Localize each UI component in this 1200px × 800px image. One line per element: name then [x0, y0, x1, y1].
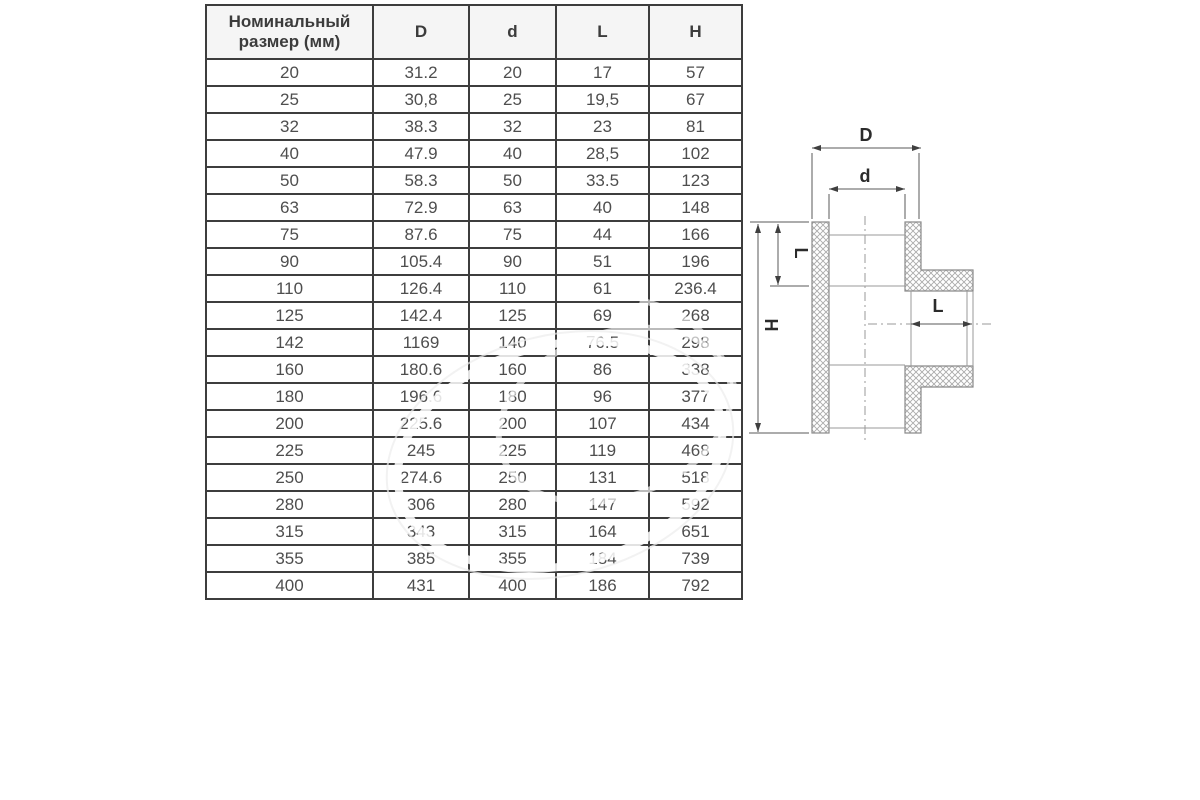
table-cell: 63 — [469, 194, 556, 221]
table-cell: 87.6 — [373, 221, 469, 248]
table-cell: 250 — [469, 464, 556, 491]
table-cell: 268 — [649, 302, 742, 329]
table-cell: 61 — [556, 275, 649, 302]
table-cell: 50 — [206, 167, 373, 194]
table-row: 2530,82519,567 — [206, 86, 742, 113]
tee-body-walls — [812, 222, 973, 433]
table-cell: 125 — [469, 302, 556, 329]
table-cell: 20 — [469, 59, 556, 86]
table-cell: 1169 — [373, 329, 469, 356]
label-H: H — [761, 319, 781, 332]
table-cell: 126.4 — [373, 275, 469, 302]
table-cell: 38.3 — [373, 113, 469, 140]
table-cell: 306 — [373, 491, 469, 518]
table-cell: 105.4 — [373, 248, 469, 275]
table-cell: 196 — [649, 248, 742, 275]
table-cell: 119 — [556, 437, 649, 464]
table-cell: 315 — [469, 518, 556, 545]
table-cell: 67 — [649, 86, 742, 113]
table-cell: 160 — [206, 356, 373, 383]
table-cell: 140 — [469, 329, 556, 356]
table-cell: 17 — [556, 59, 649, 86]
table-cell: 19,5 — [556, 86, 649, 113]
label-d: d — [860, 166, 871, 186]
table-row: 180196.618096377 — [206, 383, 742, 410]
table-body: 2031.22017572530,82519,5673238.332238140… — [206, 59, 742, 599]
table-cell: 142.4 — [373, 302, 469, 329]
table-cell: 75 — [469, 221, 556, 248]
label-D: D — [860, 125, 873, 145]
table-cell: 63 — [206, 194, 373, 221]
table-cell: 280 — [469, 491, 556, 518]
table-cell: 225.6 — [373, 410, 469, 437]
label-L-branch: L — [933, 296, 944, 316]
label-L-left: L — [791, 248, 811, 259]
table-cell: 274.6 — [373, 464, 469, 491]
table-cell: 40 — [206, 140, 373, 167]
table-cell: 57 — [649, 59, 742, 86]
table-cell: 400 — [206, 572, 373, 599]
table-cell: 23 — [556, 113, 649, 140]
table-cell: 86 — [556, 356, 649, 383]
table-cell: 434 — [649, 410, 742, 437]
table-cell: 102 — [649, 140, 742, 167]
table-cell: 44 — [556, 221, 649, 248]
table-cell: 280 — [206, 491, 373, 518]
table-cell: 355 — [206, 545, 373, 572]
table-cell: 196.6 — [373, 383, 469, 410]
table-cell: 32 — [469, 113, 556, 140]
column-header-nominal-size: Номинальный размер (мм) — [206, 5, 373, 59]
table-row: 250274.6250131518 — [206, 464, 742, 491]
table-cell: 110 — [206, 275, 373, 302]
table-cell: 518 — [649, 464, 742, 491]
table-cell: 58.3 — [373, 167, 469, 194]
column-header-d: d — [469, 5, 556, 59]
table-row: 110126.411061236.4 — [206, 275, 742, 302]
table-row: 3238.3322381 — [206, 113, 742, 140]
table-cell: 180 — [206, 383, 373, 410]
table-cell: 792 — [649, 572, 742, 599]
table-row: 225245225119468 — [206, 437, 742, 464]
table-cell: 592 — [649, 491, 742, 518]
table-cell: 385 — [373, 545, 469, 572]
table-cell: 377 — [649, 383, 742, 410]
table-cell: 180.6 — [373, 356, 469, 383]
column-header-L: L — [556, 5, 649, 59]
centerlines — [865, 216, 993, 440]
dimension-L-left: L — [770, 224, 811, 286]
table-cell: 186 — [556, 572, 649, 599]
table-cell: 298 — [649, 329, 742, 356]
table-cell: 225 — [206, 437, 373, 464]
table-cell: 123 — [649, 167, 742, 194]
table-row: 5058.35033.5123 — [206, 167, 742, 194]
column-header-H: H — [649, 5, 742, 59]
table-cell: 40 — [556, 194, 649, 221]
table-row: 200225.6200107434 — [206, 410, 742, 437]
table-cell: 131 — [556, 464, 649, 491]
table-cell: 81 — [649, 113, 742, 140]
table-row: 355385355184739 — [206, 545, 742, 572]
table-cell: 160 — [469, 356, 556, 383]
table-row: 142116914076.5298 — [206, 329, 742, 356]
table-cell: 180 — [469, 383, 556, 410]
table-cell: 76.5 — [556, 329, 649, 356]
table-cell: 25 — [206, 86, 373, 113]
page: Номинальный размер (мм) D d L H 2031.220… — [0, 0, 1200, 800]
table-row: 6372.96340148 — [206, 194, 742, 221]
table-cell: 142 — [206, 329, 373, 356]
table-cell: 468 — [649, 437, 742, 464]
table-cell: 28,5 — [556, 140, 649, 167]
table-cell: 400 — [469, 572, 556, 599]
table-row: 4047.94028,5102 — [206, 140, 742, 167]
table-cell: 651 — [649, 518, 742, 545]
table-cell: 315 — [206, 518, 373, 545]
table-row: 160180.616086338 — [206, 356, 742, 383]
fitting-dimensions-table: Номинальный размер (мм) D d L H 2031.220… — [205, 4, 743, 600]
table-cell: 110 — [469, 275, 556, 302]
table-cell: 343 — [373, 518, 469, 545]
table-cell: 148 — [649, 194, 742, 221]
table-cell: 166 — [649, 221, 742, 248]
table-cell: 107 — [556, 410, 649, 437]
table-row: 315343315164651 — [206, 518, 742, 545]
socket-lines — [829, 235, 973, 428]
column-header-D: D — [373, 5, 469, 59]
table-cell: 40 — [469, 140, 556, 167]
tee-fitting-drawing: D d L H L — [745, 105, 1005, 455]
dimension-L-branch: L — [911, 296, 972, 327]
table-cell: 69 — [556, 302, 649, 329]
table-cell: 236.4 — [649, 275, 742, 302]
table-cell: 20 — [206, 59, 373, 86]
table-cell: 200 — [469, 410, 556, 437]
table-cell: 147 — [556, 491, 649, 518]
table-cell: 184 — [556, 545, 649, 572]
table-cell: 25 — [469, 86, 556, 113]
table-cell: 32 — [206, 113, 373, 140]
table-cell: 50 — [469, 167, 556, 194]
table-cell: 75 — [206, 221, 373, 248]
table-cell: 90 — [469, 248, 556, 275]
table-row: 125142.412569268 — [206, 302, 742, 329]
table-cell: 355 — [469, 545, 556, 572]
table-cell: 431 — [373, 572, 469, 599]
table-row: 90105.49051196 — [206, 248, 742, 275]
table-cell: 30,8 — [373, 86, 469, 113]
table-row: 2031.2201757 — [206, 59, 742, 86]
dimension-d: d — [829, 166, 905, 219]
table-cell: 225 — [469, 437, 556, 464]
table-cell: 90 — [206, 248, 373, 275]
table-cell: 250 — [206, 464, 373, 491]
table-cell: 31.2 — [373, 59, 469, 86]
table-cell: 338 — [649, 356, 742, 383]
table-cell: 245 — [373, 437, 469, 464]
table-row: 280306280147592 — [206, 491, 742, 518]
table-cell: 164 — [556, 518, 649, 545]
table-cell: 47.9 — [373, 140, 469, 167]
table-cell: 33.5 — [556, 167, 649, 194]
table-row: 400431400186792 — [206, 572, 742, 599]
table-cell: 739 — [649, 545, 742, 572]
table-cell: 96 — [556, 383, 649, 410]
table-cell: 125 — [206, 302, 373, 329]
table-cell: 72.9 — [373, 194, 469, 221]
table-header-row: Номинальный размер (мм) D d L H — [206, 5, 742, 59]
table-cell: 51 — [556, 248, 649, 275]
table-cell: 200 — [206, 410, 373, 437]
table-row: 7587.67544166 — [206, 221, 742, 248]
